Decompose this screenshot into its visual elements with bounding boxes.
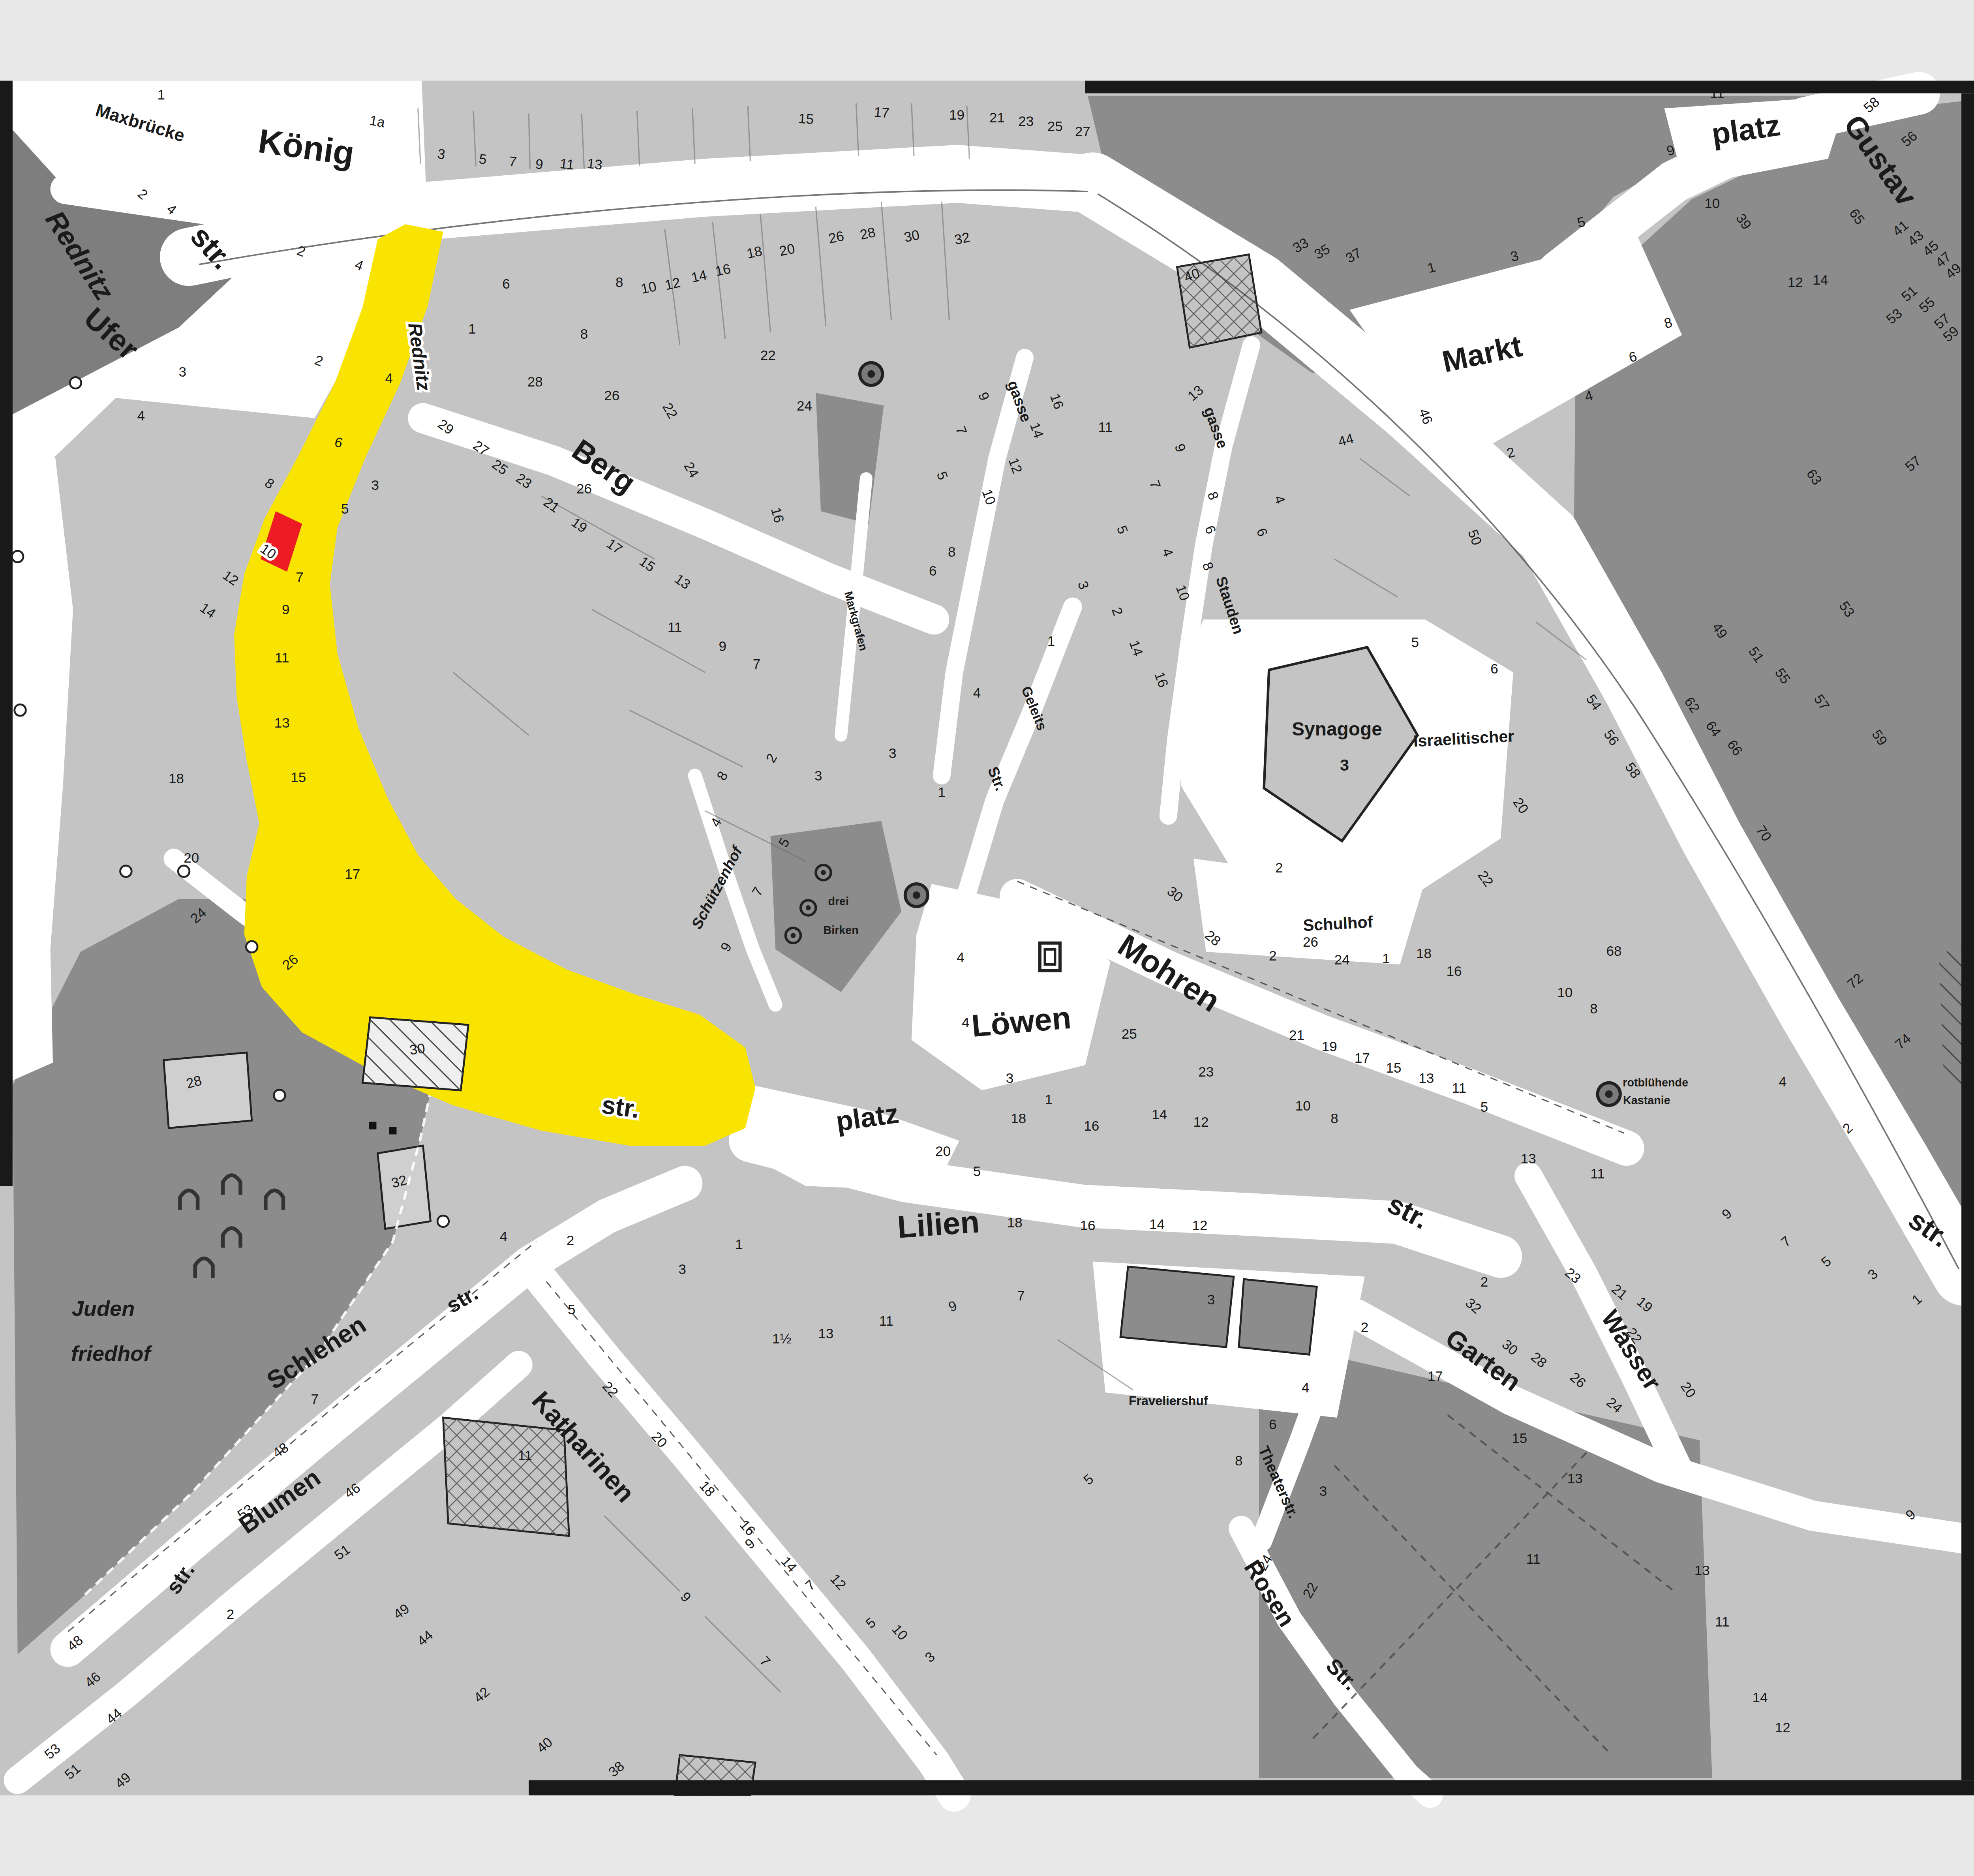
num-14: 14	[1152, 1107, 1167, 1122]
num-18: 18	[169, 771, 184, 786]
num-13: 13	[1694, 1563, 1710, 1578]
num-11: 11	[518, 1448, 532, 1463]
num-21: 21	[989, 110, 1005, 125]
num-6: 6	[1490, 661, 1498, 676]
num-4: 4	[973, 685, 981, 700]
num-18: 18	[745, 243, 764, 261]
survey-point-icon	[178, 866, 190, 877]
num-23: 23	[1198, 1064, 1214, 1079]
num-13: 13	[1567, 1471, 1583, 1486]
num-12: 12	[1192, 1218, 1207, 1233]
num-8: 8	[1590, 1001, 1598, 1016]
num-5: 5	[1480, 1099, 1488, 1114]
num-3: 3	[179, 364, 187, 379]
num-5: 5	[568, 1302, 576, 1317]
num-26: 26	[576, 481, 592, 496]
num-15: 15	[1386, 1060, 1401, 1075]
num-4: 4	[957, 949, 964, 965]
poi-juden: Juden	[72, 1296, 135, 1320]
survey-point-icon	[274, 1090, 285, 1101]
num-11: 11	[1710, 86, 1724, 101]
num-19: 19	[1322, 1039, 1337, 1054]
num-2: 2	[1480, 1274, 1488, 1289]
num-11: 11	[668, 619, 682, 635]
poi-friedhof: friedhof	[71, 1341, 153, 1365]
num-5: 5	[341, 501, 349, 516]
num-27: 27	[1075, 124, 1090, 139]
num-7: 7	[753, 656, 761, 672]
num-25: 25	[1122, 1026, 1137, 1041]
num-16: 16	[1447, 963, 1462, 979]
num-10: 10	[640, 278, 658, 296]
num-17: 17	[873, 104, 890, 121]
num-30: 30	[409, 1040, 426, 1058]
num-18: 18	[1011, 1111, 1026, 1126]
survey-point-icon	[246, 941, 257, 953]
num-14: 14	[1752, 1690, 1768, 1705]
num-14: 14	[1813, 272, 1828, 287]
num-20: 20	[935, 1143, 951, 1159]
num-11: 11	[1590, 1166, 1604, 1181]
num-4: 4	[137, 408, 145, 423]
num-3: 3	[1207, 1292, 1215, 1307]
num-24: 24	[797, 398, 812, 413]
survey-point-icon	[120, 866, 132, 877]
num-2: 2	[1269, 948, 1277, 963]
num-8: 8	[615, 274, 623, 290]
num-25: 25	[1047, 118, 1063, 134]
num-1: 1	[468, 321, 476, 336]
num-8: 8	[948, 544, 956, 559]
num-18: 18	[1007, 1215, 1023, 1230]
num-20: 20	[778, 240, 796, 259]
num-13: 13	[274, 715, 290, 730]
survey-point-icon	[70, 377, 81, 388]
num-17: 17	[1428, 1368, 1443, 1384]
num-16: 16	[1080, 1218, 1096, 1233]
num-17: 17	[345, 866, 360, 882]
num-4: 4	[1302, 1380, 1310, 1395]
survey-point-icon	[15, 704, 26, 716]
city-map: MaxbrückeKönigstr.UferRednitzRednitzstr.…	[0, 0, 1974, 1876]
num-12: 12	[663, 274, 681, 293]
poi-kastanie: Kastanie	[1623, 1094, 1670, 1107]
num-3: 3	[814, 768, 822, 783]
num-4: 4	[500, 1229, 508, 1244]
num-7: 7	[311, 1391, 319, 1407]
num-12: 12	[1788, 274, 1803, 290]
num-3: 3	[1006, 1070, 1014, 1086]
num-8: 8	[580, 326, 588, 341]
num-16: 16	[1084, 1118, 1099, 1133]
num-16: 16	[714, 261, 732, 279]
num-17: 17	[1355, 1050, 1370, 1066]
num-2: 2	[1275, 860, 1283, 875]
num-1½: 1½	[772, 1331, 792, 1346]
num-14: 14	[690, 267, 708, 285]
num-5: 5	[1411, 634, 1419, 650]
num-30: 30	[903, 227, 921, 245]
num-7: 7	[1017, 1288, 1025, 1303]
num-32: 32	[953, 229, 971, 247]
poi-drei: drei	[828, 895, 849, 908]
num-1a: 1a	[368, 112, 387, 130]
num-28: 28	[859, 224, 877, 242]
num-3: 3	[679, 1261, 687, 1277]
num-22: 22	[760, 347, 776, 363]
poi-3: 3	[1340, 756, 1349, 774]
num-6: 6	[1269, 1416, 1277, 1432]
num-7: 7	[296, 569, 304, 585]
num-12: 12	[1193, 1114, 1209, 1129]
street-str: str.	[600, 1090, 642, 1124]
num-11: 11	[1526, 1551, 1541, 1566]
num-11: 11	[879, 1313, 893, 1328]
num-18: 18	[1416, 946, 1432, 961]
poi-rotblühende: rotblühende	[1623, 1076, 1688, 1089]
num-10: 10	[1295, 1098, 1311, 1113]
num-1: 1	[1047, 633, 1055, 649]
building-28	[164, 1052, 252, 1128]
tree-icon	[905, 884, 928, 906]
num-20: 20	[184, 850, 199, 865]
num-13: 13	[1521, 1151, 1536, 1166]
survey-point-icon	[437, 1216, 449, 1227]
num-28: 28	[527, 374, 543, 389]
num-10: 10	[1557, 985, 1572, 1000]
num-11: 11	[1452, 1080, 1466, 1096]
num-14: 14	[1149, 1216, 1165, 1232]
fraveliershuf-building-west	[1120, 1266, 1234, 1347]
num-21: 21	[1289, 1027, 1304, 1043]
num-8: 8	[1330, 1111, 1338, 1126]
num-15: 15	[1512, 1430, 1527, 1446]
gate-marker-icon	[369, 1122, 376, 1129]
num-11: 11	[275, 650, 289, 665]
num-2: 2	[227, 1606, 235, 1622]
num-15: 15	[291, 769, 306, 785]
num-24: 24	[1334, 952, 1350, 967]
num-13: 13	[818, 1326, 833, 1341]
num-3: 3	[1319, 1483, 1327, 1499]
tree-icon	[860, 363, 882, 385]
poi-schulhof: Schulhof	[1302, 912, 1374, 934]
num-8: 8	[1235, 1453, 1243, 1468]
num-23: 23	[1018, 113, 1034, 129]
num-4: 4	[1779, 1074, 1787, 1089]
num-1: 1	[735, 1236, 743, 1252]
street-lilien: Lilien	[896, 1204, 981, 1244]
num-19: 19	[949, 107, 964, 122]
num-9: 9	[535, 156, 544, 172]
num-1: 1	[157, 87, 165, 102]
num-6: 6	[502, 276, 510, 291]
num-3: 3	[371, 477, 379, 493]
num-4: 4	[962, 1015, 970, 1030]
num-2: 2	[1361, 1319, 1369, 1335]
poi-birken: Birken	[823, 924, 858, 936]
num-11: 11	[1715, 1614, 1729, 1629]
num-2: 2	[567, 1233, 574, 1248]
num-7: 7	[508, 153, 517, 169]
fraveliershuf-building-east	[1239, 1279, 1317, 1354]
num-15: 15	[798, 111, 814, 127]
num-13: 13	[1419, 1070, 1434, 1086]
num-5: 5	[973, 1163, 981, 1179]
num-9: 9	[719, 638, 727, 654]
num-3: 3	[889, 745, 897, 761]
num-11: 11	[1098, 419, 1113, 435]
num-1: 1	[938, 784, 946, 800]
num-1: 1	[1382, 951, 1390, 966]
num-6: 6	[929, 563, 937, 578]
num-68: 68	[1606, 943, 1622, 959]
num-13: 13	[586, 156, 603, 173]
hatched-building-11	[443, 1418, 569, 1536]
tree-icon	[1598, 1083, 1620, 1105]
num-12: 12	[1775, 1720, 1790, 1735]
num-11: 11	[559, 156, 575, 173]
survey-point-icon	[12, 551, 23, 562]
num-4: 4	[385, 370, 393, 386]
num-26: 26	[604, 388, 619, 403]
num-1: 1	[1045, 1092, 1053, 1107]
poi-fraveliershuf: Fraveliershuf	[1129, 1394, 1208, 1408]
num-9: 9	[282, 602, 290, 617]
num-10: 10	[1704, 195, 1720, 211]
poi-synagoge: Synagoge	[1292, 719, 1382, 739]
gate-marker-icon	[389, 1127, 396, 1134]
num-26: 26	[1303, 934, 1318, 949]
num-26: 26	[827, 228, 845, 246]
